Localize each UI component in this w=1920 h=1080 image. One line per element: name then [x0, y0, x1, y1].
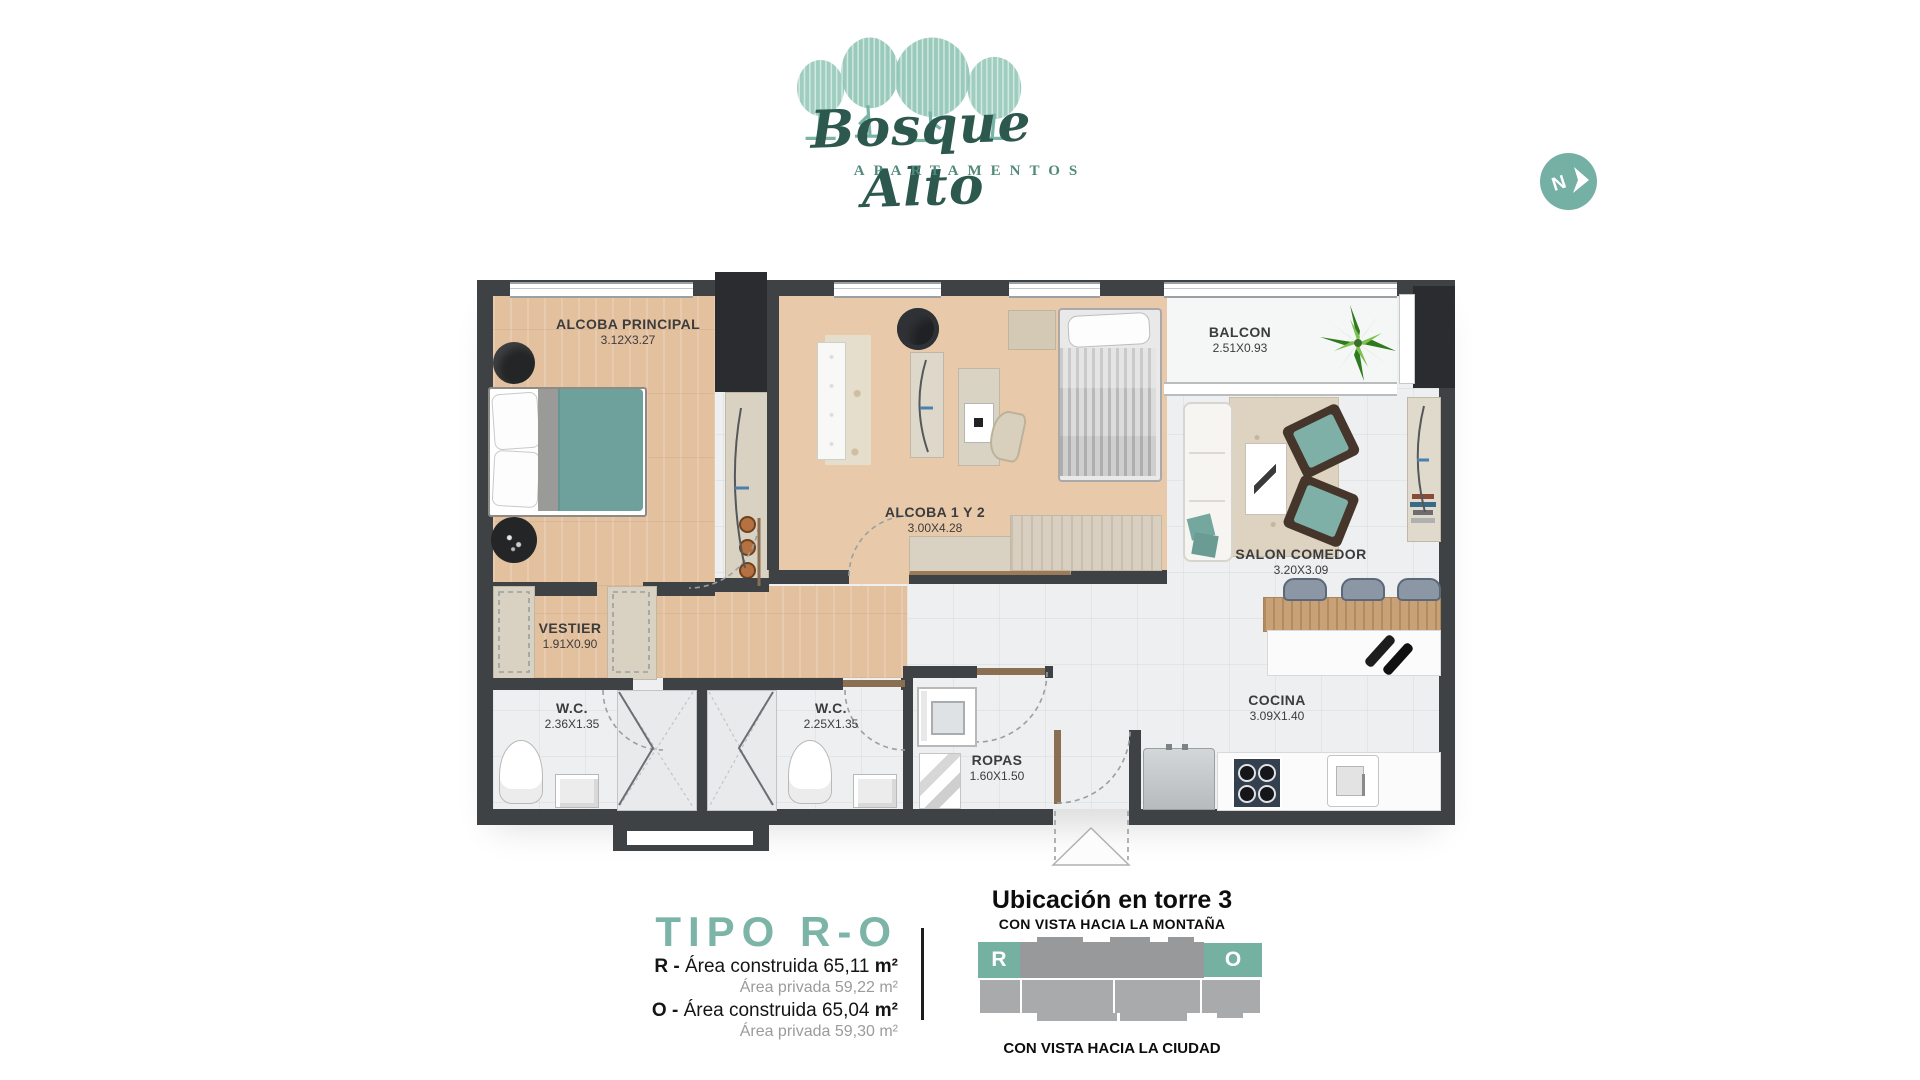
logo-title: Bosque Alto — [750, 90, 1094, 224]
unit-o-prefix: O - — [652, 1000, 684, 1021]
type-label: TIPO R-O — [608, 908, 898, 956]
tower-block — [1022, 980, 1113, 1013]
room-label-salon-comedor: SALON COMEDOR 3.20X3.09 — [1235, 546, 1366, 577]
area-construida-r: R - Área construida 65,11 m² — [608, 956, 898, 978]
unit-o-label: O — [1225, 948, 1241, 972]
unit-r-prefix: R - — [654, 956, 685, 977]
area-construida-o: O - Área construida 65,04 m² — [608, 1000, 898, 1022]
footer-divider — [921, 928, 924, 1020]
plan-detail-overlay — [477, 280, 1477, 880]
tower-tab — [1037, 1013, 1117, 1021]
room-label-balcon: BALCON 2.51X0.93 — [1209, 324, 1271, 355]
tower-unit-r: R — [978, 942, 1020, 978]
tower-block — [1020, 942, 1204, 978]
unit-r-label: R — [991, 948, 1006, 972]
tower-title: Ubicación en torre 3 — [962, 886, 1262, 915]
room-label-ropas: ROPAS 1.60X1.50 — [970, 752, 1025, 783]
tower-block — [1202, 980, 1260, 1013]
area-privada-o: Área privada 59,30 m² — [608, 1023, 898, 1041]
room-label-cocina: COCINA 3.09X1.40 — [1248, 692, 1306, 723]
north-arrow-icon — [1573, 167, 1589, 193]
room-label-vestier: VESTIER 1.91X0.90 — [539, 620, 602, 651]
tower-tab — [1120, 1013, 1187, 1021]
tower-unit-o: O — [1204, 943, 1262, 977]
room-label-alcoba-principal: ALCOBA PRINCIPAL 3.12X3.27 — [556, 316, 700, 347]
entry-arrow-icon — [1053, 828, 1129, 865]
room-label-wc1: W.C. 2.36X1.35 — [545, 700, 600, 731]
room-label-alcoba-12: ALCOBA 1 Y 2 3.00X4.28 — [885, 504, 985, 535]
compass-n-label: N — [1549, 172, 1569, 196]
room-label-wc2: W.C. 2.25X1.35 — [804, 700, 859, 731]
logo-subtitle: APARTAMENTOS — [800, 163, 1140, 180]
tower-caption: CON VISTA HACIA LA CIUDAD — [962, 1040, 1262, 1057]
floor-plan: ALCOBA PRINCIPAL 3.12X3.27 ALCOBA 1 Y 2 … — [477, 280, 1477, 850]
tower-block — [980, 980, 1020, 1013]
tower-subtitle: CON VISTA HACIA LA MONTAÑA — [962, 916, 1262, 932]
tower-tab — [1217, 1010, 1243, 1018]
compass-north-icon: N — [1540, 153, 1597, 210]
area-privada-r: Área privada 59,22 m² — [608, 979, 898, 997]
tower-location-diagram: Ubicación en torre 3 CON VISTA HACIA LA … — [962, 886, 1262, 1066]
tower-block — [1115, 980, 1200, 1013]
